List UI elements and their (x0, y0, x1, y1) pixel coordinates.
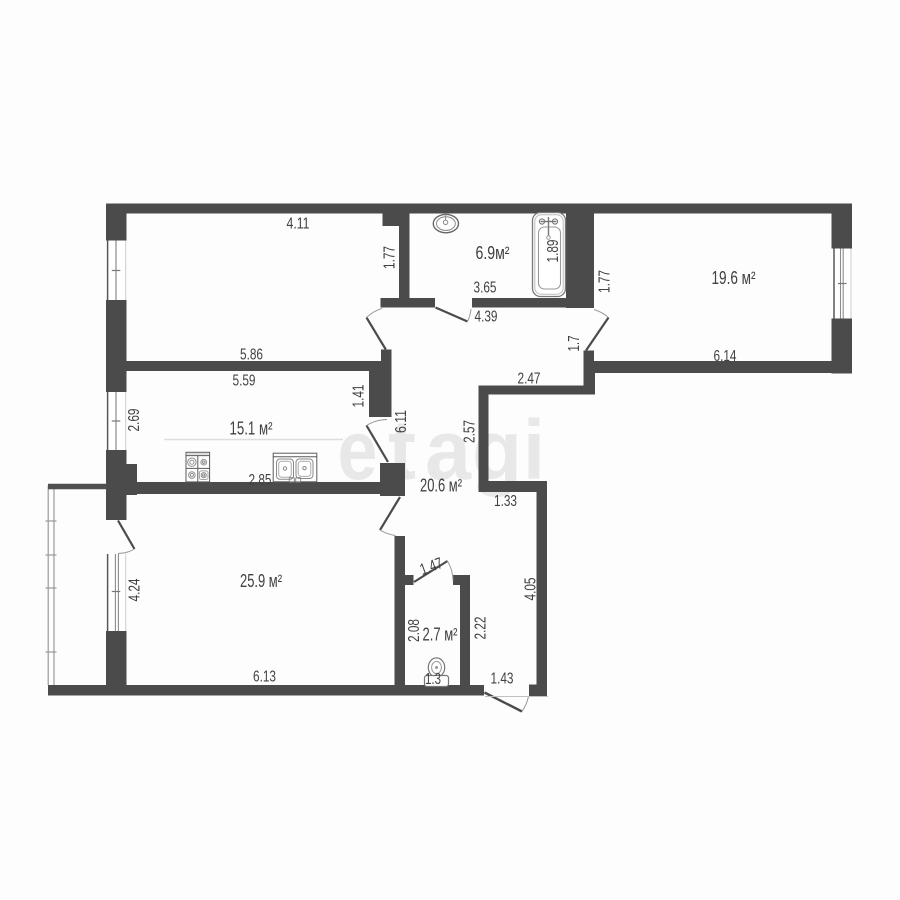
svg-text:6.13: 6.13 (253, 669, 276, 686)
svg-text:6.14: 6.14 (714, 348, 737, 365)
svg-text:5.59: 5.59 (233, 373, 256, 390)
svg-text:2.47: 2.47 (518, 371, 541, 388)
svg-text:2.85: 2.85 (249, 472, 272, 489)
svg-text:25.9 м²: 25.9 м² (240, 571, 282, 591)
svg-text:4.11: 4.11 (287, 216, 310, 233)
svg-text:1.43: 1.43 (491, 671, 514, 688)
svg-text:2.7 м²: 2.7 м² (423, 625, 458, 645)
svg-text:3.65: 3.65 (474, 280, 497, 297)
svg-text:1.7: 1.7 (566, 335, 583, 351)
svg-text:20.6 м²: 20.6 м² (420, 476, 462, 496)
svg-text:19.6 м²: 19.6 м² (712, 268, 756, 288)
svg-text:1.77: 1.77 (382, 246, 399, 269)
svg-text:15.1 м²: 15.1 м² (230, 419, 273, 439)
svg-text:1.89: 1.89 (545, 239, 562, 262)
svg-text:1.3: 1.3 (425, 671, 441, 688)
svg-text:1.33: 1.33 (494, 493, 517, 510)
svg-text:4.05: 4.05 (523, 577, 540, 600)
svg-text:2.22: 2.22 (473, 616, 490, 639)
svg-text:5.86: 5.86 (240, 347, 263, 364)
svg-text:2.69: 2.69 (126, 408, 143, 431)
svg-text:4.39: 4.39 (475, 309, 498, 326)
svg-text:2.57: 2.57 (462, 420, 479, 443)
svg-text:2.08: 2.08 (406, 619, 423, 642)
svg-text:4.24: 4.24 (127, 578, 144, 601)
svg-text:6.11: 6.11 (393, 410, 410, 433)
svg-text:1.77: 1.77 (597, 270, 614, 293)
svg-text:1.41: 1.41 (351, 384, 368, 407)
svg-text:6.9м²: 6.9м² (476, 243, 510, 263)
